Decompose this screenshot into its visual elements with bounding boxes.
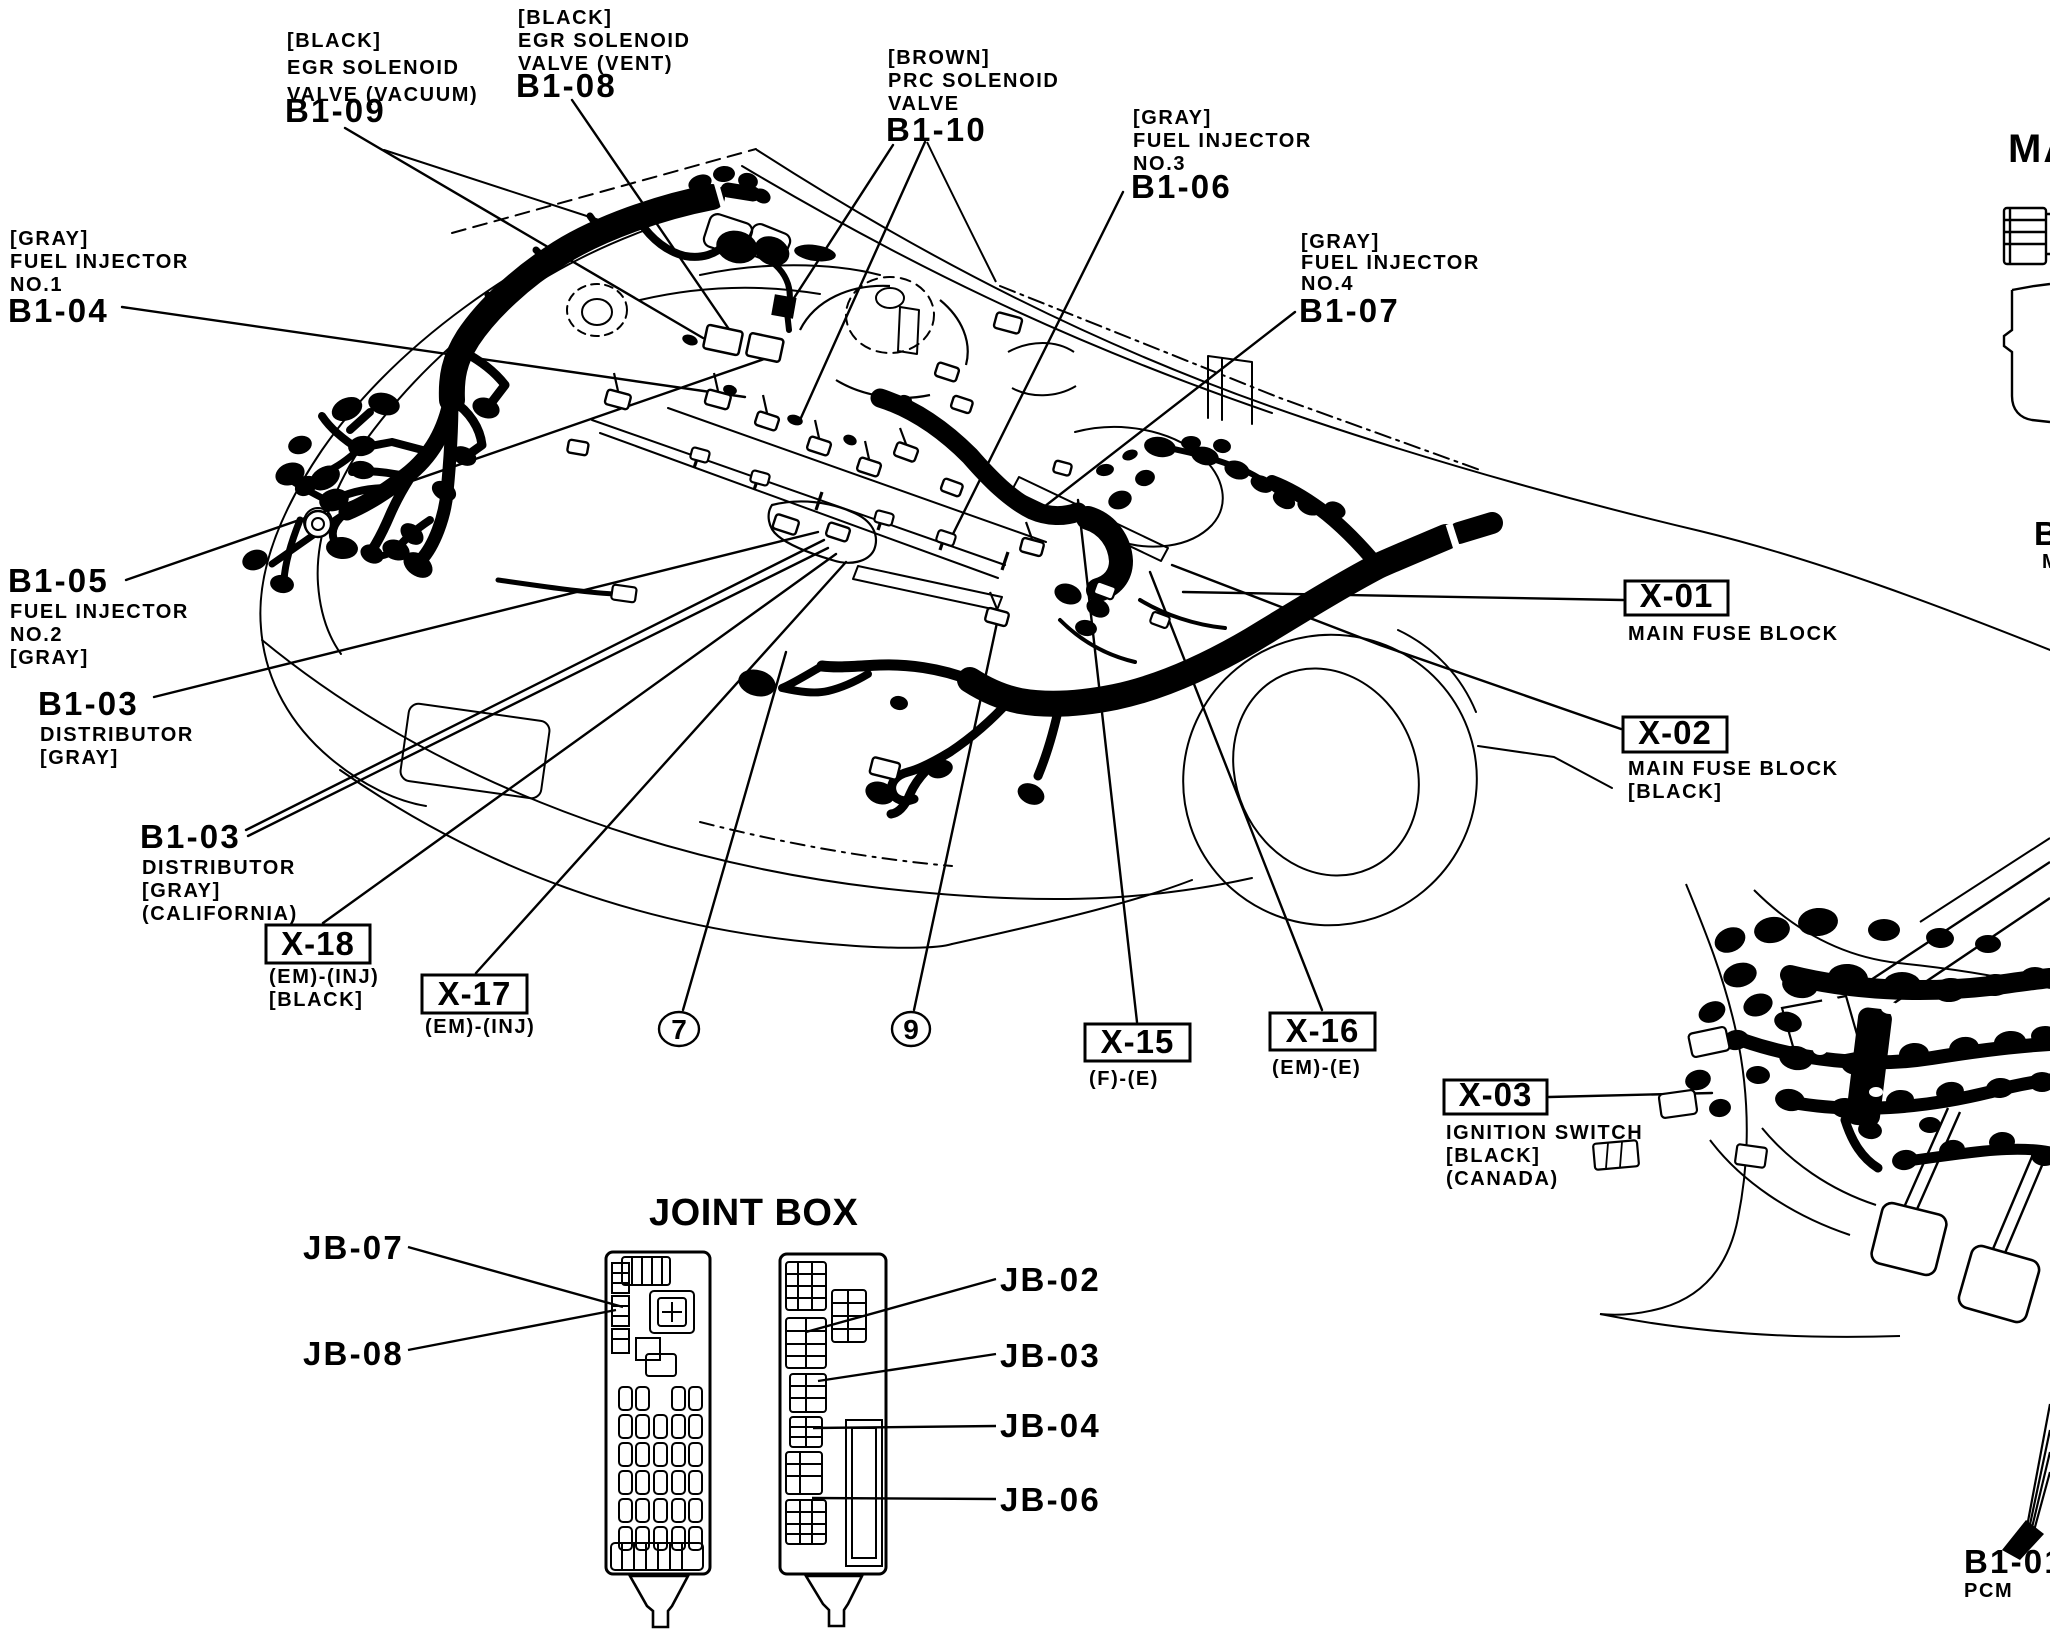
svg-text:B1-06: B1-06 — [1131, 168, 1232, 205]
svg-text:DISTRIBUTOR: DISTRIBUTOR — [142, 857, 296, 879]
svg-text:JB-03: JB-03 — [1000, 1337, 1101, 1374]
svg-text:JB-02: JB-02 — [1000, 1261, 1101, 1298]
svg-text:9: 9 — [903, 1014, 919, 1045]
svg-text:B1-07: B1-07 — [1299, 292, 1400, 329]
svg-text:JB-08: JB-08 — [303, 1335, 404, 1372]
svg-text:FUEL INJECTOR: FUEL INJECTOR — [1133, 130, 1312, 152]
svg-text:[GRAY]: [GRAY] — [1301, 231, 1380, 253]
svg-text:B1-05: B1-05 — [8, 562, 109, 599]
svg-text:X-17: X-17 — [438, 975, 512, 1012]
svg-text:(CANADA): (CANADA) — [1446, 1168, 1559, 1190]
svg-text:FUEL INJECTOR: FUEL INJECTOR — [1301, 252, 1480, 274]
svg-text:B1-03: B1-03 — [38, 685, 139, 722]
svg-text:B1-10: B1-10 — [886, 111, 987, 148]
svg-text:(EM)-(INJ): (EM)-(INJ) — [269, 966, 379, 988]
svg-text:[BLACK]: [BLACK] — [269, 989, 364, 1011]
svg-text:(EM)-(INJ): (EM)-(INJ) — [425, 1016, 535, 1038]
svg-text:PRC SOLENOID: PRC SOLENOID — [888, 70, 1059, 92]
svg-text:JB-06: JB-06 — [1000, 1481, 1101, 1518]
svg-text:EGR SOLENOID: EGR SOLENOID — [287, 57, 460, 79]
svg-text:[BLACK]: [BLACK] — [1628, 781, 1723, 803]
svg-text:X-18: X-18 — [281, 925, 355, 962]
svg-text:B1-03: B1-03 — [140, 818, 241, 855]
svg-text:B1-04: B1-04 — [8, 292, 109, 329]
svg-text:DISTRIBUTOR: DISTRIBUTOR — [40, 724, 194, 746]
svg-text:JOINT BOX: JOINT BOX — [649, 1192, 858, 1234]
svg-text:X-03: X-03 — [1459, 1076, 1533, 1113]
svg-text:[BLACK]: [BLACK] — [518, 7, 613, 29]
svg-text:FUEL INJECTOR: FUEL INJECTOR — [10, 251, 189, 273]
svg-text:[BROWN]: [BROWN] — [888, 47, 990, 69]
svg-text:X-16: X-16 — [1286, 1012, 1360, 1049]
svg-text:[GRAY]: [GRAY] — [142, 880, 221, 902]
svg-text:7: 7 — [671, 1014, 687, 1045]
svg-text:[GRAY]: [GRAY] — [10, 228, 89, 250]
svg-text:NO.2: NO.2 — [10, 624, 63, 646]
svg-text:[GRAY]: [GRAY] — [1133, 107, 1212, 129]
svg-text:MAIN: MAIN — [2042, 551, 2050, 573]
svg-text:X-01: X-01 — [1640, 577, 1714, 614]
svg-text:[GRAY]: [GRAY] — [10, 647, 89, 669]
svg-text:B1-02: B1-02 — [2034, 515, 2050, 552]
svg-text:B1-08: B1-08 — [516, 67, 617, 104]
svg-text:(CALIFORNIA): (CALIFORNIA) — [142, 903, 298, 925]
svg-text:PCM: PCM — [1964, 1580, 2013, 1602]
svg-text:X-02: X-02 — [1638, 714, 1712, 751]
svg-text:(EM)-(E): (EM)-(E) — [1272, 1057, 1361, 1079]
svg-text:EGR SOLENOID: EGR SOLENOID — [518, 30, 691, 52]
svg-text:MAIN: MAIN — [2008, 127, 2050, 171]
svg-text:[BLACK]: [BLACK] — [287, 30, 382, 52]
svg-text:MAIN FUSE BLOCK: MAIN FUSE BLOCK — [1628, 623, 1839, 645]
svg-text:(F)-(E): (F)-(E) — [1089, 1068, 1159, 1090]
svg-text:JB-07: JB-07 — [303, 1229, 404, 1266]
svg-text:[GRAY]: [GRAY] — [40, 747, 119, 769]
svg-text:MAIN FUSE BLOCK: MAIN FUSE BLOCK — [1628, 758, 1839, 780]
svg-text:B1-09: B1-09 — [285, 92, 386, 129]
svg-text:IGNITION SWITCH: IGNITION SWITCH — [1446, 1122, 1643, 1144]
svg-text:[BLACK]: [BLACK] — [1446, 1145, 1541, 1167]
svg-text:JB-04: JB-04 — [1000, 1407, 1101, 1444]
svg-text:X-15: X-15 — [1101, 1023, 1175, 1060]
svg-text:FUEL INJECTOR: FUEL INJECTOR — [10, 601, 189, 623]
